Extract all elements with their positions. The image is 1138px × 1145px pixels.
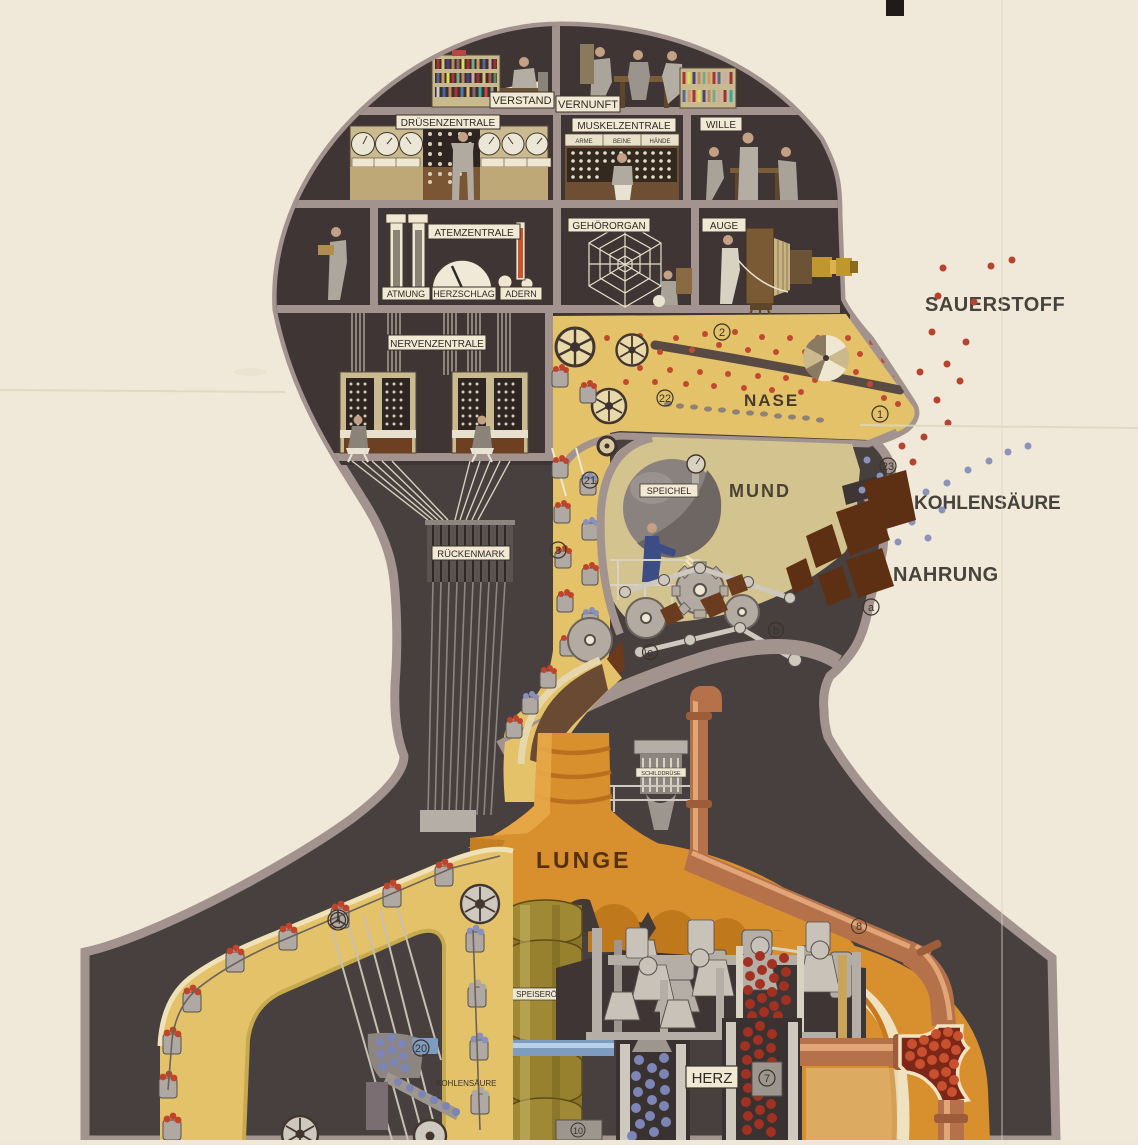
svg-text:NAHRUNG: NAHRUNG <box>893 564 999 586</box>
svg-text:23: 23 <box>882 461 894 473</box>
svg-text:22: 22 <box>659 393 671 405</box>
svg-text:WILLE: WILLE <box>706 120 736 131</box>
svg-text:3: 3 <box>555 545 561 557</box>
svg-text:ADERN: ADERN <box>505 289 537 299</box>
svg-text:2: 2 <box>719 327 725 339</box>
svg-text:BEINE: BEINE <box>613 139 631 145</box>
svg-text:HERZ: HERZ <box>692 1070 733 1087</box>
svg-text:a: a <box>868 602 875 614</box>
svg-text:NASE: NASE <box>744 391 799 410</box>
svg-text:8: 8 <box>856 921 862 933</box>
svg-text:b: b <box>773 625 779 637</box>
svg-text:SPEICHEL: SPEICHEL <box>647 486 692 496</box>
svg-text:ATMUNG: ATMUNG <box>387 289 425 299</box>
svg-text:RÜCKENMARK: RÜCKENMARK <box>437 549 505 560</box>
svg-text:VERNUNFT: VERNUNFT <box>558 99 618 111</box>
svg-text:ARME: ARME <box>575 139 592 145</box>
svg-text:MUSKELZENTRALE: MUSKELZENTRALE <box>577 121 671 132</box>
svg-text:DRÜSENZENTRALE: DRÜSENZENTRALE <box>401 117 496 129</box>
svg-text:c: c <box>647 647 653 659</box>
svg-text:ATEMZENTRALE: ATEMZENTRALE <box>434 228 514 239</box>
svg-text:NERVENZENTRALE: NERVENZENTRALE <box>390 339 484 350</box>
svg-text:7: 7 <box>764 1073 770 1085</box>
svg-text:1: 1 <box>877 409 883 421</box>
svg-text:GEHÖRORGAN: GEHÖRORGAN <box>572 220 645 232</box>
svg-text:SAUERSTOFF: SAUERSTOFF <box>925 294 1065 316</box>
svg-text:KOHLENSÄURE: KOHLENSÄURE <box>914 493 1061 514</box>
svg-text:AUGE: AUGE <box>710 221 739 232</box>
svg-text:HÄNDE: HÄNDE <box>649 138 670 145</box>
svg-text:LUNGE: LUNGE <box>536 847 632 873</box>
svg-text:10: 10 <box>573 1126 583 1136</box>
svg-text:20: 20 <box>415 1043 427 1055</box>
svg-text:MUND: MUND <box>729 481 791 501</box>
svg-text:4: 4 <box>335 915 341 927</box>
svg-text:HERZSCHLAG: HERZSCHLAG <box>433 289 495 299</box>
svg-text:SCHILDDRÜSE: SCHILDDRÜSE <box>641 770 681 777</box>
svg-text:KOHLENSÄURE: KOHLENSÄURE <box>436 1079 496 1088</box>
svg-text:VERSTAND: VERSTAND <box>492 95 551 107</box>
svg-text:21: 21 <box>584 475 596 487</box>
